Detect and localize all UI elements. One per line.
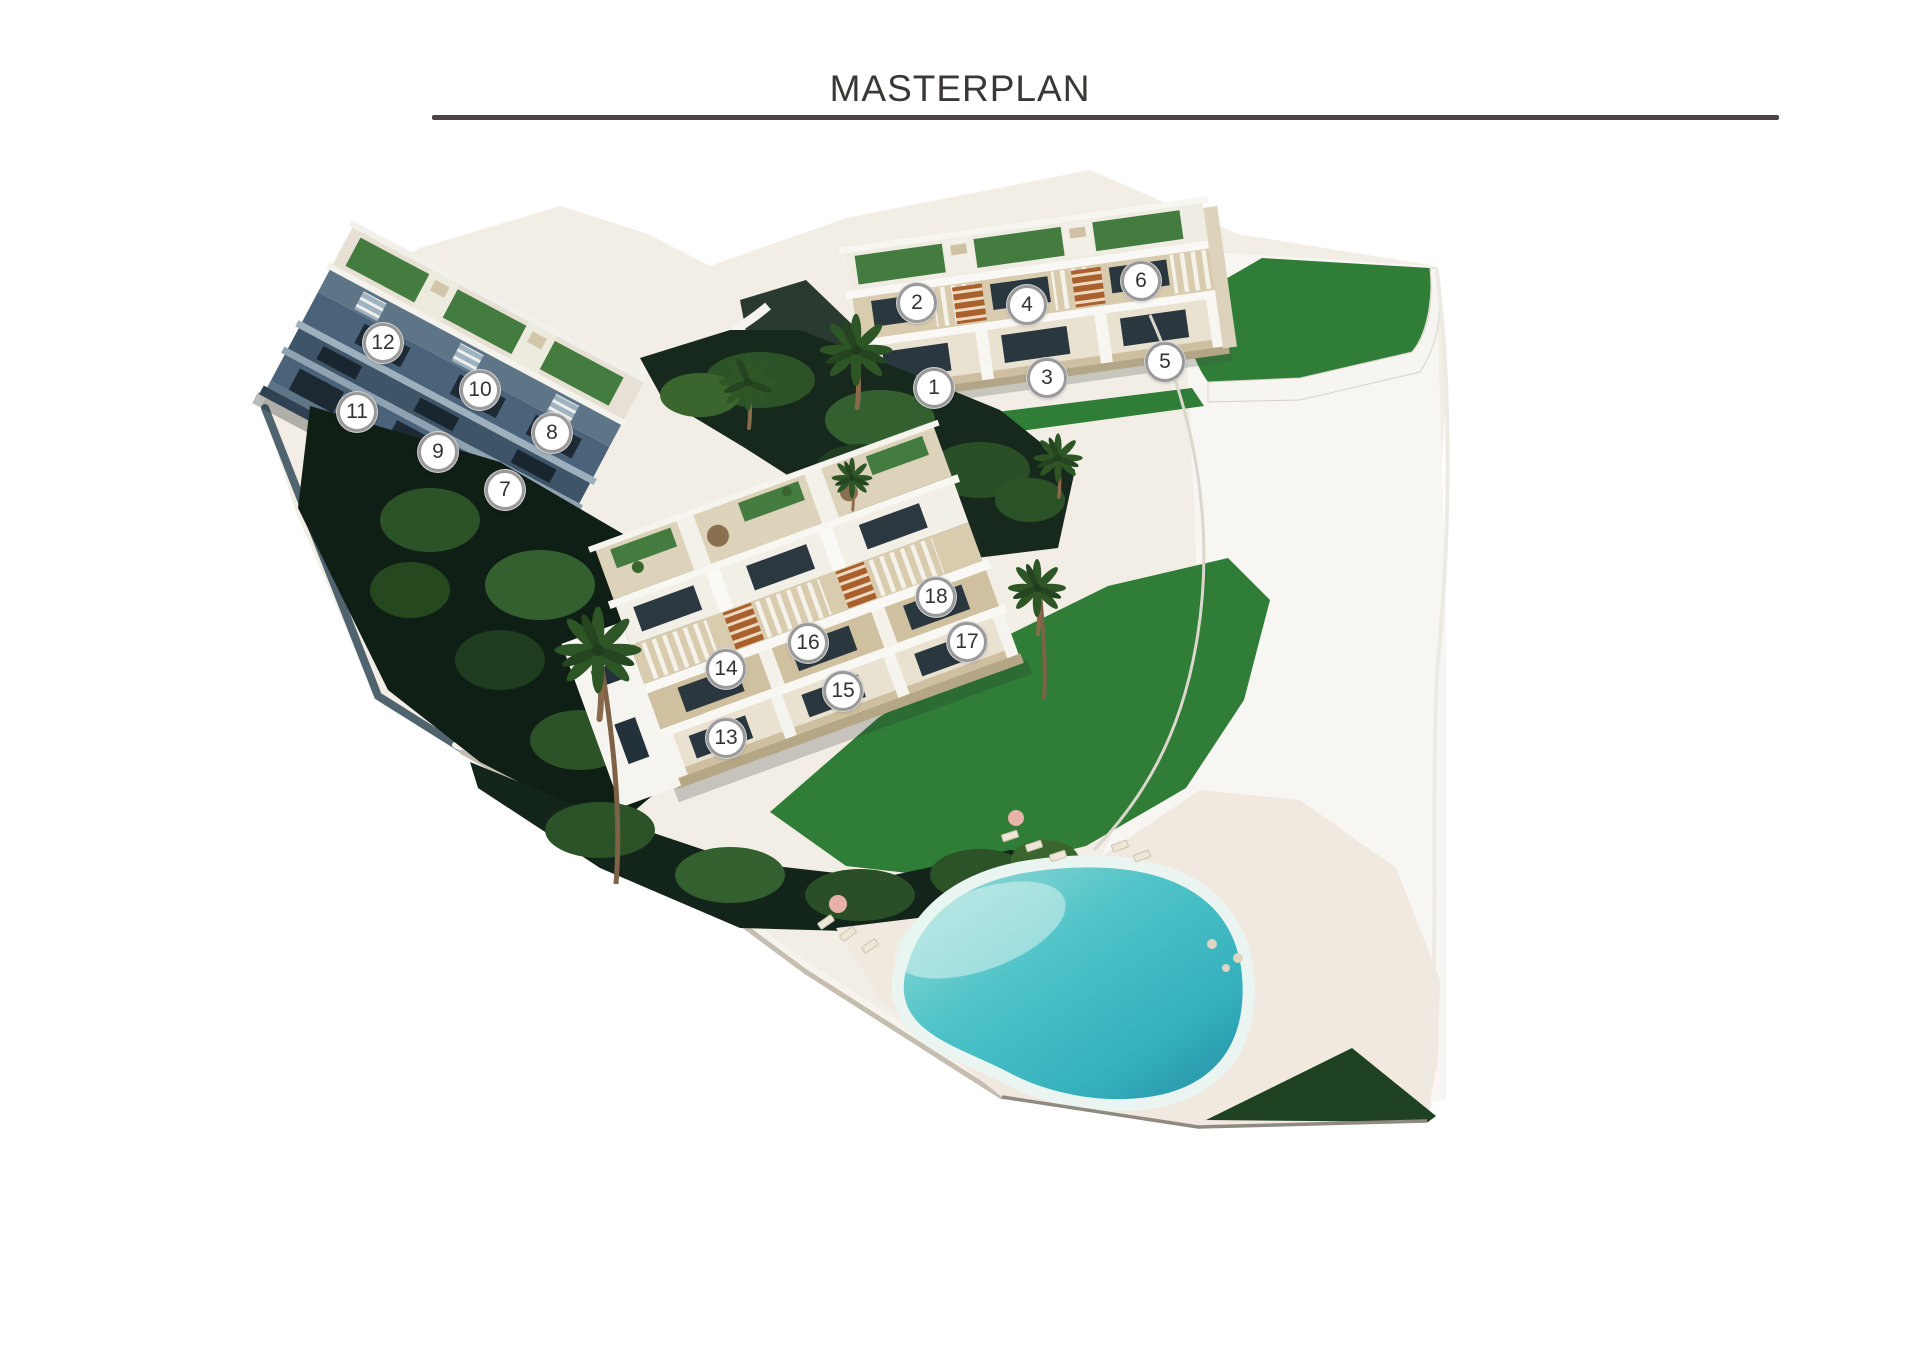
masterplan-page: MASTERPLAN — [0, 0, 1920, 1358]
masterplan-render — [0, 0, 1920, 1358]
pink-umbrella — [829, 895, 847, 913]
pink-umbrella — [1008, 810, 1024, 826]
